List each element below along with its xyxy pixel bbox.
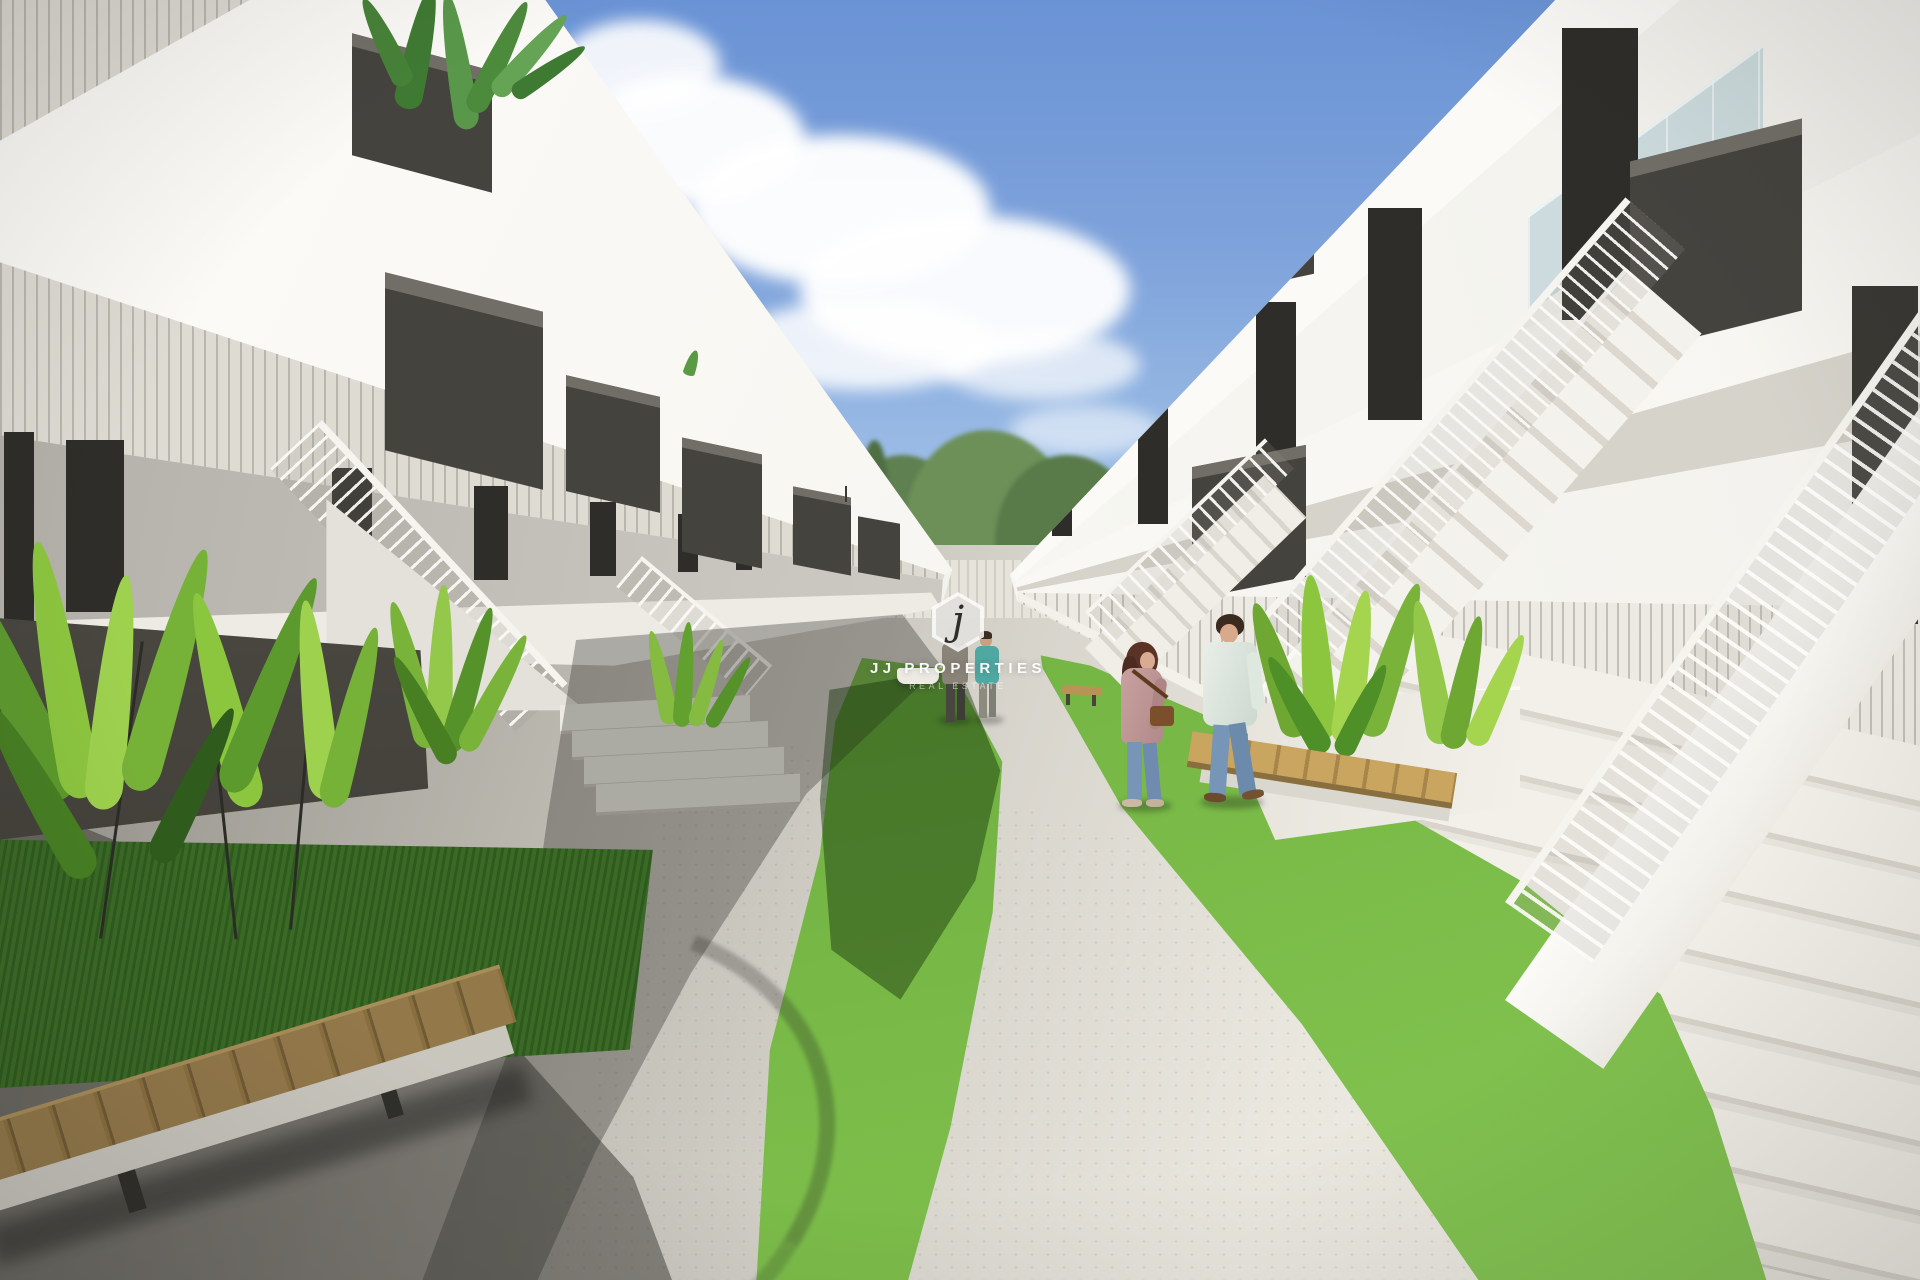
doorway — [474, 486, 508, 580]
leg — [1127, 742, 1142, 802]
logo-letter-j: j — [932, 592, 984, 652]
window — [1368, 208, 1422, 420]
shoe — [1146, 799, 1164, 807]
doorway — [66, 440, 124, 612]
hexagon-logo-outer: j — [932, 592, 984, 652]
doorway — [4, 432, 34, 622]
watermark-tagline-text: REAL ESTATE — [909, 681, 1007, 691]
courtyard-render: j JJ PROPERTIES REAL ESTATE — [0, 0, 1920, 1280]
watermark-brand-text: JJ PROPERTIES — [870, 660, 1046, 677]
shoulder-bag — [1150, 706, 1174, 726]
face — [1220, 624, 1238, 643]
person-shadow — [938, 716, 972, 725]
small-wood-bench-leg — [1092, 695, 1096, 706]
small-wood-bench-leg — [1066, 694, 1070, 705]
balcony-box — [858, 516, 900, 579]
cloud — [940, 330, 1140, 400]
jj-properties-watermark: j JJ PROPERTIES REAL ESTATE — [808, 592, 1108, 691]
shoe — [1122, 799, 1142, 807]
doorway — [590, 502, 616, 576]
antenna — [845, 486, 847, 502]
